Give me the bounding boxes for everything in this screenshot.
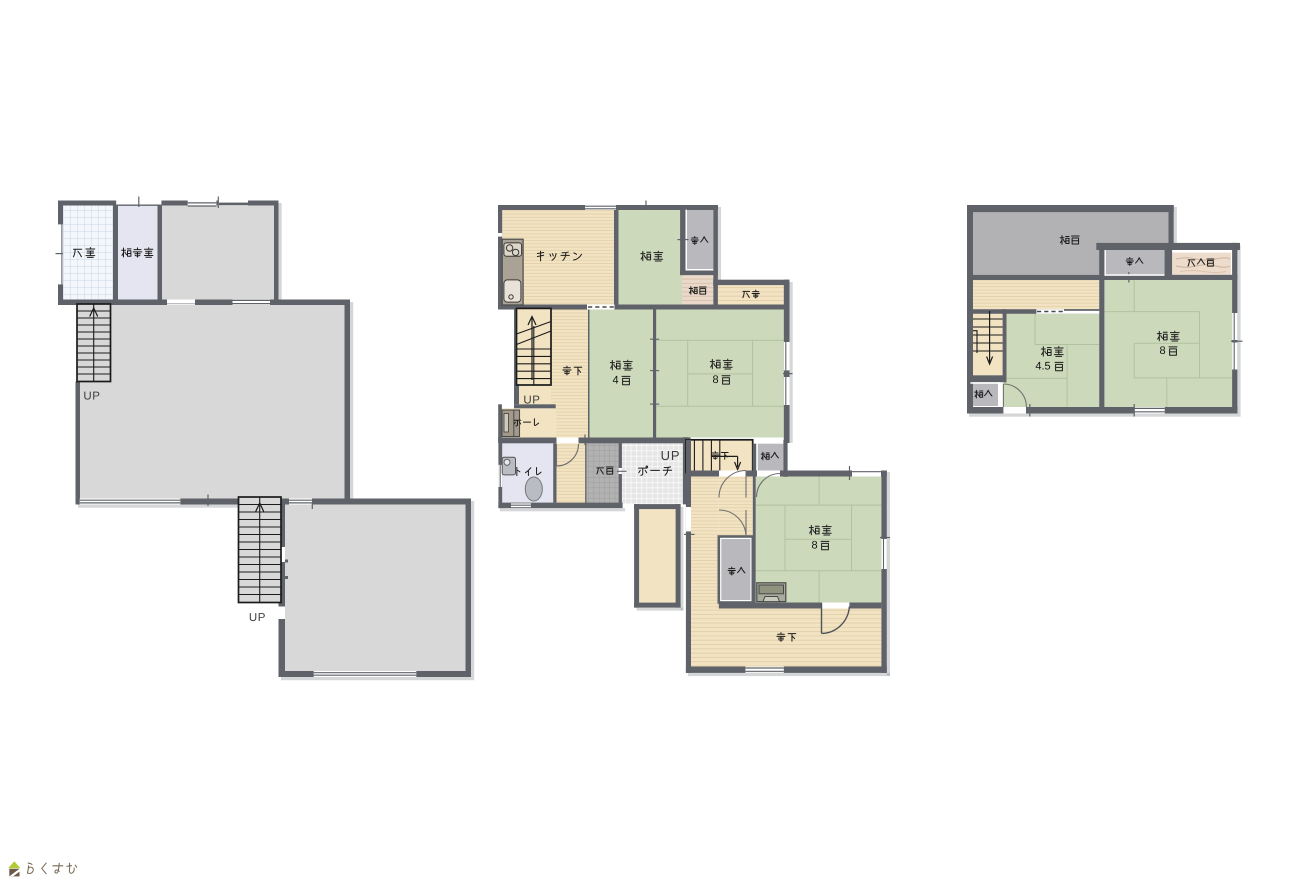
svg-text:8: 8 xyxy=(712,374,718,386)
svg-text:UP: UP xyxy=(83,391,100,403)
svg-text:4: 4 xyxy=(612,375,618,387)
svg-text:UP: UP xyxy=(661,448,681,463)
svg-text:UP: UP xyxy=(523,395,540,407)
svg-text:UP: UP xyxy=(249,612,266,624)
svg-text:4.5: 4.5 xyxy=(1035,361,1050,373)
svg-text:8: 8 xyxy=(811,540,817,552)
svg-text:8: 8 xyxy=(1159,345,1165,357)
